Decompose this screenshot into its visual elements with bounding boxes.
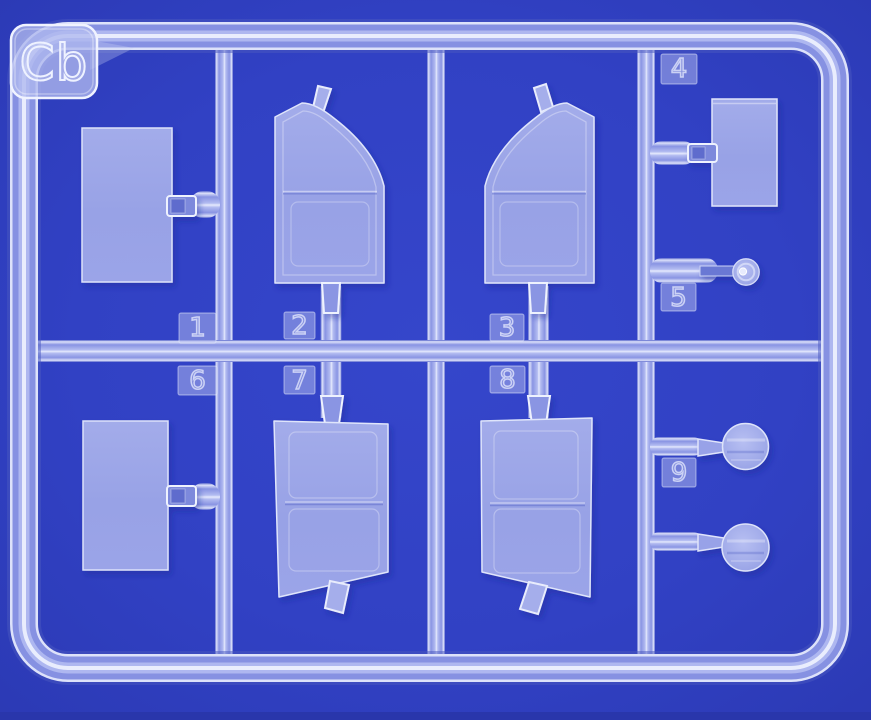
part-tag-9: 9	[662, 458, 696, 488]
tag-number-2: 2	[291, 311, 308, 341]
part-tag-7: 7	[284, 366, 315, 396]
tag-number-3: 3	[499, 313, 516, 343]
tag-number-8: 8	[499, 365, 516, 395]
rod-part5	[700, 266, 734, 276]
sprue-canvas: 1 2 3 4 5 6 7 8	[0, 0, 871, 720]
part-tag-1: 1	[179, 313, 216, 343]
part-tag-3: 3	[490, 313, 524, 343]
bottom-edge-strip	[0, 712, 871, 720]
branch-part9b	[650, 532, 702, 551]
part-tag-5: 5	[661, 283, 696, 313]
part-tag-8: 8	[490, 365, 525, 395]
sprue-label-text: Cb	[20, 34, 89, 92]
gate-part2	[322, 283, 340, 313]
part-tag-6: 6	[178, 366, 217, 396]
tag-number-5: 5	[670, 283, 687, 313]
gate-part7	[321, 396, 343, 424]
part-tag-2: 2	[284, 311, 315, 341]
tag-number-9: 9	[671, 458, 688, 488]
tag-number-7: 7	[291, 366, 308, 396]
tag-number-1: 1	[189, 313, 206, 343]
middle-horizontal-bar	[24, 340, 835, 362]
part-tag-4: 4	[661, 54, 697, 84]
tag-number-6: 6	[189, 366, 206, 396]
branch-part9a	[650, 437, 702, 456]
gate-part3	[529, 283, 547, 313]
tag-number-4: 4	[671, 54, 688, 84]
model-kit-sprue-photo: 1 2 3 4 5 6 7 8	[0, 0, 871, 720]
